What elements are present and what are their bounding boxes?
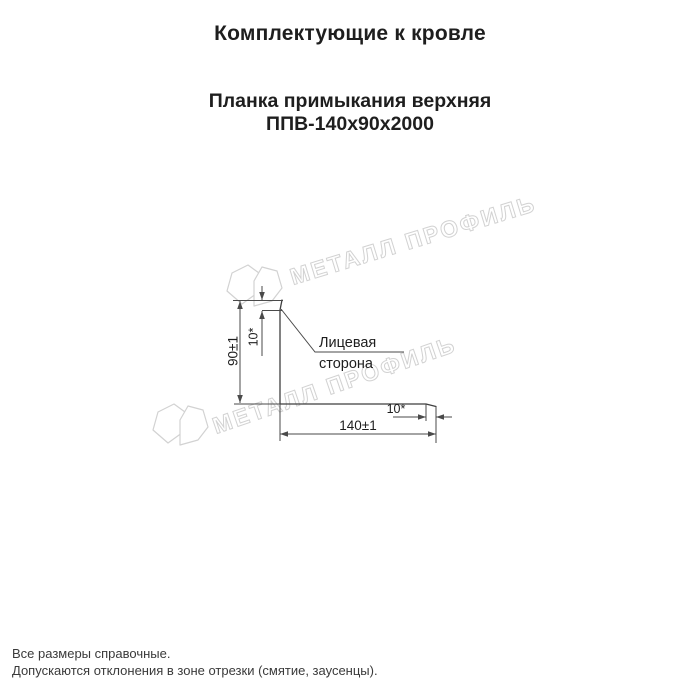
dimension-hem-end-label: 10*: [387, 402, 406, 416]
metal-profile-logo-icon: [180, 406, 208, 445]
arrow-up-icon: [259, 311, 265, 319]
arrow-left-icon: [280, 431, 288, 437]
footer-notes: Все размеры справочные. Допускаются откл…: [12, 646, 378, 679]
arrow-down-icon: [237, 395, 243, 403]
footer-note-2: Допускаются отклонения в зоне отрезки (с…: [12, 663, 378, 680]
arrow-right-icon: [418, 414, 426, 420]
face-side-label-line1: Лицевая: [319, 335, 376, 351]
dimension-hem-top-label: 10*: [246, 327, 260, 346]
technical-drawing: МЕТАЛЛ ПРОФИЛЬ МЕТАЛЛ ПРОФИЛЬ 90±1: [0, 0, 700, 700]
arrow-left-icon: [436, 414, 444, 420]
dimension-height: 90±1: [226, 301, 243, 403]
watermark-top: МЕТАЛЛ ПРОФИЛЬ: [227, 190, 539, 306]
dimension-hem-end: 10*: [387, 402, 452, 420]
face-side-label-line2: сторона: [319, 356, 374, 372]
dimension-width-label: 140±1: [339, 418, 376, 433]
spec-sheet-page: Комплектующие к кровле Планка примыкания…: [0, 0, 700, 700]
watermark-text: МЕТАЛЛ ПРОФИЛЬ: [287, 190, 539, 290]
watermark-bottom: МЕТАЛЛ ПРОФИЛЬ: [153, 331, 460, 445]
arrow-right-icon: [428, 431, 436, 437]
dimension-width: 140±1: [280, 418, 436, 437]
dimension-height-label: 90±1: [226, 336, 241, 366]
footer-note-1: Все размеры справочные.: [12, 646, 378, 663]
